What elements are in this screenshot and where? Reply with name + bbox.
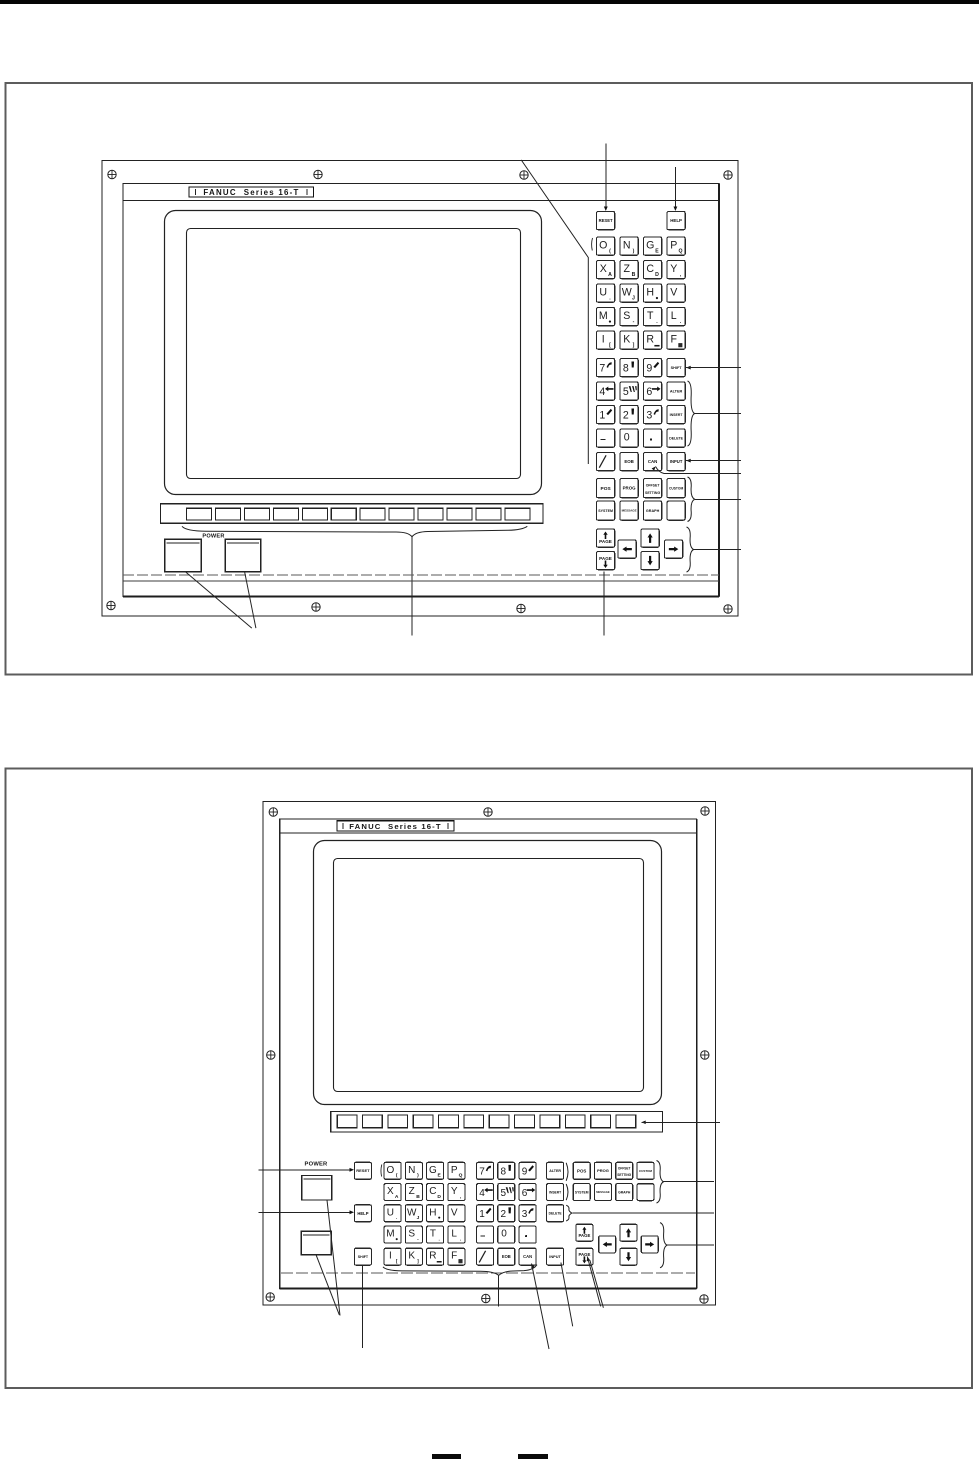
svg-text:●: ● — [438, 1216, 441, 1221]
svg-text:G: G — [429, 1165, 437, 1176]
svg-text:Y: Y — [451, 1186, 458, 1197]
svg-text:RESET: RESET — [356, 1168, 370, 1173]
svg-text:SETTING: SETTING — [617, 1173, 631, 1177]
svg-text:F: F — [670, 333, 677, 345]
svg-text:P: P — [670, 239, 677, 251]
svg-text:MESSAGE: MESSAGE — [622, 509, 637, 513]
svg-text:1: 1 — [599, 410, 605, 422]
svg-text:H: H — [646, 286, 654, 298]
svg-text:O: O — [599, 239, 607, 251]
svg-text:SHIFT: SHIFT — [358, 1255, 369, 1259]
svg-text:FANUC Series 16-T: FANUC Series 16-T — [203, 188, 299, 197]
svg-text:8: 8 — [500, 1167, 506, 1178]
svg-text:POWER: POWER — [305, 1162, 329, 1168]
svg-text:DELETE: DELETE — [549, 1211, 563, 1215]
svg-text:J: J — [632, 295, 635, 301]
svg-text:3: 3 — [522, 1209, 528, 1220]
svg-text:O: O — [386, 1165, 394, 1176]
svg-text:INSERT: INSERT — [670, 413, 684, 417]
svg-text:▩: ▩ — [458, 1258, 463, 1264]
svg-text:U: U — [599, 286, 607, 298]
svg-text:P: P — [451, 1165, 458, 1176]
svg-text:V: V — [670, 286, 678, 298]
svg-text:CAN: CAN — [648, 459, 658, 464]
svg-text:7: 7 — [599, 363, 605, 375]
svg-text:S: S — [408, 1229, 415, 1240]
svg-text:X: X — [387, 1186, 394, 1197]
svg-text:0: 0 — [624, 431, 630, 443]
svg-text:I: I — [602, 333, 605, 345]
svg-text:N: N — [623, 239, 631, 251]
svg-text:HELP: HELP — [670, 218, 682, 223]
svg-text:PAGE: PAGE — [599, 556, 612, 561]
svg-text:E: E — [655, 248, 659, 254]
svg-text:GRAPH: GRAPH — [618, 1190, 631, 1194]
svg-text:▬: ▬ — [437, 1259, 442, 1264]
svg-text:GRAPH: GRAPH — [646, 509, 660, 513]
svg-text:9: 9 — [522, 1167, 528, 1178]
svg-text:INSERT: INSERT — [549, 1190, 561, 1194]
svg-text:2: 2 — [500, 1209, 506, 1220]
svg-text:D: D — [437, 1194, 441, 1200]
svg-text:●: ● — [655, 295, 658, 301]
svg-text:ALTER: ALTER — [670, 389, 683, 393]
svg-text:M: M — [599, 310, 608, 322]
svg-text:G: G — [646, 239, 654, 251]
svg-text:U: U — [387, 1207, 394, 1218]
svg-text:C: C — [429, 1186, 436, 1197]
svg-text:2: 2 — [623, 410, 629, 422]
svg-text:R: R — [429, 1251, 436, 1262]
svg-text:I: I — [389, 1251, 392, 1262]
svg-text:▬: ▬ — [654, 342, 660, 348]
svg-text:6: 6 — [646, 386, 652, 398]
svg-text:OFFSET: OFFSET — [618, 1166, 631, 1170]
svg-text:PROG: PROG — [623, 486, 637, 491]
svg-text:R: R — [646, 333, 654, 345]
svg-text:T: T — [647, 310, 654, 322]
svg-text:SYSTEM: SYSTEM — [598, 509, 613, 513]
svg-text:SYSTEM: SYSTEM — [575, 1190, 589, 1194]
svg-text:CUSTOM: CUSTOM — [669, 486, 683, 490]
svg-text:(: ( — [609, 248, 611, 254]
svg-text:X: X — [600, 263, 607, 275]
svg-text:J: J — [417, 1215, 420, 1221]
svg-text:W: W — [407, 1207, 417, 1218]
svg-text:SHIFT: SHIFT — [671, 366, 683, 370]
svg-text:MESSAGE: MESSAGE — [596, 1190, 610, 1194]
svg-text:1: 1 — [479, 1209, 485, 1220]
svg-text:9: 9 — [646, 363, 652, 375]
svg-text:OFFSET: OFFSET — [646, 484, 661, 488]
svg-text:EOB: EOB — [624, 459, 634, 464]
svg-text:SETTING: SETTING — [645, 491, 660, 495]
svg-text:POWER: POWER — [202, 533, 224, 539]
svg-text:4: 4 — [479, 1188, 485, 1199]
svg-text:T: T — [430, 1229, 436, 1240]
svg-text:POS: POS — [577, 1168, 586, 1173]
svg-text:5: 5 — [623, 386, 629, 398]
svg-text:W: W — [622, 286, 632, 298]
svg-text:D: D — [655, 272, 659, 278]
svg-text:M: M — [386, 1229, 394, 1240]
svg-text:K: K — [623, 333, 630, 345]
svg-text:[: [ — [609, 342, 611, 348]
svg-text:V: V — [451, 1207, 458, 1218]
svg-text:): ) — [633, 248, 635, 254]
svg-text:C: C — [646, 263, 654, 275]
svg-text:DELETE: DELETE — [669, 436, 683, 440]
svg-text:-: - — [633, 319, 635, 325]
svg-text:Z: Z — [623, 263, 630, 275]
svg-text:Y: Y — [670, 263, 677, 275]
svg-text:Q: Q — [678, 248, 682, 254]
svg-text:]: ] — [633, 342, 635, 348]
svg-text:4: 4 — [599, 386, 605, 398]
svg-text:INPUT: INPUT — [549, 1254, 561, 1259]
svg-text:RESET: RESET — [599, 218, 613, 223]
svg-text:0: 0 — [501, 1229, 507, 1240]
svg-text:K: K — [408, 1251, 415, 1262]
svg-text:A: A — [608, 272, 612, 278]
svg-text:Z: Z — [409, 1186, 415, 1197]
svg-text:PROG: PROG — [597, 1168, 609, 1173]
svg-text:PAGE: PAGE — [599, 539, 612, 544]
svg-text:CAN: CAN — [523, 1254, 532, 1259]
svg-text:B: B — [632, 272, 636, 278]
svg-text:L: L — [451, 1229, 457, 1240]
svg-text:Q: Q — [459, 1173, 463, 1179]
svg-text:B: B — [416, 1194, 420, 1200]
svg-text:PAGE: PAGE — [578, 1252, 590, 1257]
svg-text:INPUT: INPUT — [670, 459, 683, 464]
svg-text:F: F — [451, 1251, 457, 1262]
svg-text:ALTER: ALTER — [549, 1169, 561, 1173]
svg-text:3: 3 — [646, 410, 652, 422]
svg-text:●: ● — [608, 319, 611, 325]
svg-text:H: H — [429, 1207, 436, 1218]
svg-text:▩: ▩ — [678, 342, 683, 348]
svg-text:5: 5 — [500, 1188, 506, 1199]
svg-text:POS: POS — [601, 486, 612, 492]
svg-text:7: 7 — [479, 1167, 485, 1178]
svg-text:N: N — [408, 1165, 415, 1176]
svg-text:A: A — [395, 1194, 399, 1200]
svg-text:●: ● — [395, 1237, 398, 1242]
svg-text:EOB: EOB — [502, 1254, 511, 1259]
svg-text:8: 8 — [623, 363, 629, 375]
svg-text:CUSTOM: CUSTOM — [639, 1169, 652, 1173]
svg-text:PAGE: PAGE — [578, 1233, 590, 1238]
svg-text:L: L — [671, 310, 677, 322]
svg-text:HELP: HELP — [357, 1211, 368, 1216]
svg-text:FANUC Series 16-T: FANUC Series 16-T — [349, 822, 441, 831]
svg-text:S: S — [623, 310, 630, 322]
